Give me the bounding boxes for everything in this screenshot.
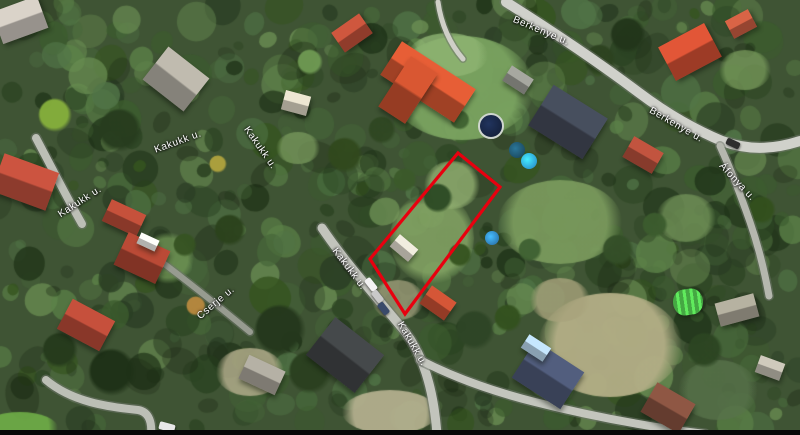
street-label: Kakukk u. <box>395 320 429 368</box>
street-label: Kakukk u. <box>153 128 203 155</box>
letterbox-bar <box>0 430 800 435</box>
street-label: Berkenye u. <box>647 105 704 145</box>
street-label: Berkenye u. <box>511 14 570 48</box>
street-labels-layer: Kakukk u.Kakukk u.Kakukk u.Kakukk u.Kaku… <box>0 0 800 435</box>
satellite-map[interactable]: Kakukk u.Kakukk u.Kakukk u.Kakukk u.Kaku… <box>0 0 800 435</box>
street-label: Kakukk u. <box>241 125 278 172</box>
street-label: Áfonya u. <box>717 161 758 203</box>
street-label: Cserje u. <box>195 284 237 322</box>
street-label: Kakukk u. <box>56 184 103 220</box>
street-label: Kakukk u. <box>330 246 368 292</box>
